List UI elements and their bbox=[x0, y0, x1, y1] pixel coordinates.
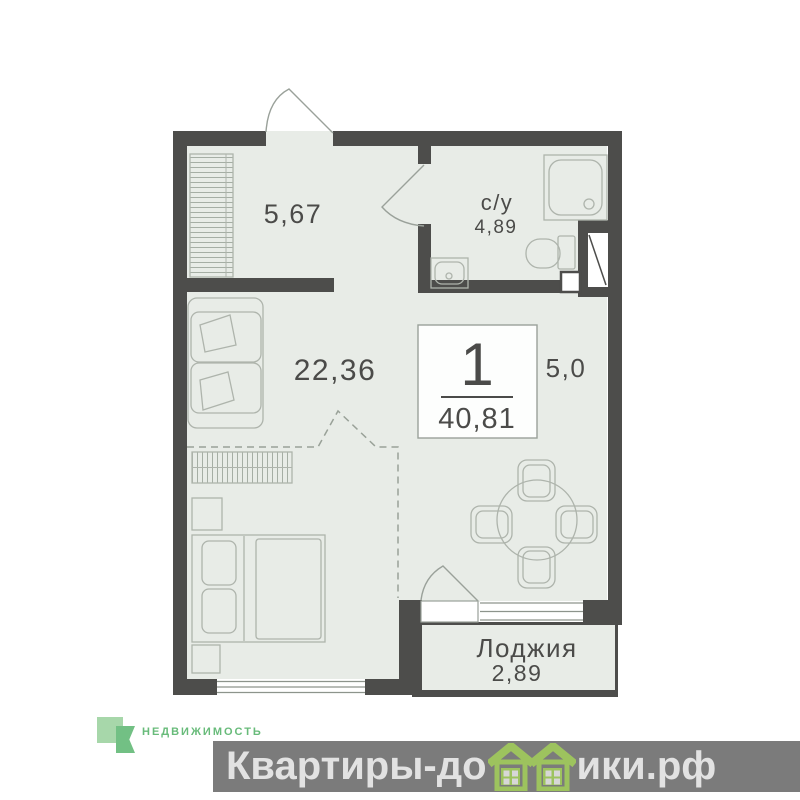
wall-shaft-bottom bbox=[578, 287, 622, 297]
watermark-bar: Квартиры-до ики.рф bbox=[213, 741, 800, 792]
loggia-name-label: Лоджия bbox=[476, 633, 577, 663]
wall-hallway bbox=[187, 278, 334, 292]
watermark-text-suffix: ики.рф bbox=[577, 741, 717, 792]
loggia-area-label: 2,89 bbox=[492, 660, 543, 686]
wall-balcony-jamb bbox=[399, 600, 422, 695]
wall-top bbox=[173, 131, 622, 146]
kitchen-area-label: 5,0 bbox=[546, 353, 587, 383]
wardrobe bbox=[192, 452, 292, 483]
houses-icon bbox=[488, 743, 576, 791]
total-area: 40,81 bbox=[438, 403, 516, 435]
wall-bath-left bbox=[418, 224, 431, 282]
duct-box bbox=[561, 272, 580, 292]
rooms-count: 1 bbox=[460, 331, 493, 398]
entrance-opening bbox=[266, 131, 333, 148]
vent-shaft bbox=[588, 233, 608, 287]
window-loggia bbox=[480, 601, 583, 622]
wall-shaft-top bbox=[578, 220, 608, 233]
agency-name: НЕДВИЖИМОСТЬ bbox=[142, 726, 263, 738]
floor-plan: 1 40,81 5,67 22,36 5,0 с/у 4,89 Лоджия 2… bbox=[0, 0, 800, 800]
bathroom-area-label: 4,89 bbox=[475, 217, 518, 238]
logo-ribbon-icon bbox=[116, 726, 135, 753]
hallway-area-label: 5,67 bbox=[264, 199, 323, 229]
wall-window-side bbox=[583, 600, 608, 622]
entrance-door-swing bbox=[266, 89, 333, 133]
bathroom-name-label: с/у bbox=[481, 190, 514, 215]
window-bottom-left bbox=[217, 679, 365, 695]
house-shape bbox=[531, 746, 575, 789]
wall-left bbox=[173, 131, 187, 695]
floor-plan-page: 1 40,81 5,67 22,36 5,0 с/у 4,89 Лоджия 2… bbox=[0, 0, 800, 800]
wall-right bbox=[608, 131, 622, 625]
living-area-label: 22,36 bbox=[294, 354, 377, 387]
watermark-text-prefix: Квартиры-до bbox=[226, 741, 487, 792]
wall-bath-stub bbox=[418, 146, 431, 164]
wall-bath-bottom bbox=[418, 280, 582, 293]
house-shape bbox=[489, 746, 533, 789]
hall-closet bbox=[190, 154, 233, 277]
summary-box: 1 40,81 bbox=[418, 325, 537, 438]
